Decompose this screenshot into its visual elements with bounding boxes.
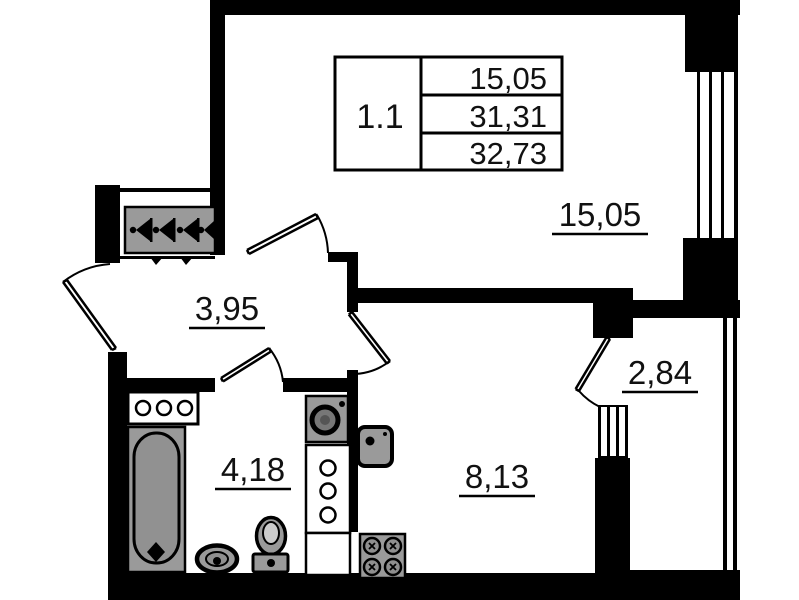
hallway-area-label: 3,95 xyxy=(195,290,259,327)
floor-plan-svg: 1.1 15,05 31,31 32,73 15,05 3,95 4,18 8,… xyxy=(0,0,799,600)
door-leaf xyxy=(63,280,116,350)
balcony-door xyxy=(576,337,610,407)
kitchen-area-label: 8,13 xyxy=(465,458,529,495)
window-icon xyxy=(598,405,601,458)
washing-machine-icon xyxy=(306,396,348,442)
wall xyxy=(347,252,358,312)
balcony-glazing-icon xyxy=(723,310,727,573)
table-value-overall-area: 32,73 xyxy=(469,136,547,171)
washbasin-icon xyxy=(197,546,237,573)
wall-thin-line xyxy=(107,188,210,192)
info-table: 1.1 15,05 31,31 32,73 xyxy=(335,57,562,171)
duct-marker-icon xyxy=(150,257,163,265)
door-swing-icon xyxy=(63,264,110,282)
window-icon xyxy=(625,405,628,458)
bathtub-icon xyxy=(128,427,185,572)
entrance-door xyxy=(63,264,116,350)
door-leaf xyxy=(576,337,610,391)
wall xyxy=(593,303,633,338)
door-swing-icon xyxy=(579,391,600,407)
wall xyxy=(595,458,630,578)
window-icon xyxy=(616,405,619,458)
door-swing-icon xyxy=(317,215,328,253)
table-value-total-area: 31,31 xyxy=(469,99,547,134)
wall xyxy=(210,0,740,15)
door-swing-icon xyxy=(269,348,283,382)
door-leaf xyxy=(221,348,271,382)
window-icon xyxy=(709,72,712,238)
wall xyxy=(358,288,633,303)
table-value-living-area: 15,05 xyxy=(469,61,547,96)
wall-thin-line xyxy=(120,256,215,259)
living-room-area-label: 15,05 xyxy=(559,196,642,233)
window-icon xyxy=(734,72,738,238)
floor-plan: 1.1 15,05 31,31 32,73 15,05 3,95 4,18 8,… xyxy=(0,0,799,600)
window-icon xyxy=(598,456,628,458)
duct-marker-icon xyxy=(180,257,193,265)
wall xyxy=(685,0,738,72)
bathroom-door xyxy=(221,348,283,382)
balcony-area-label: 2,84 xyxy=(628,354,692,391)
kitchen-sink-icon xyxy=(352,427,392,466)
wall xyxy=(108,352,127,600)
door-leaf xyxy=(349,312,390,364)
cabinet-niche xyxy=(306,533,350,575)
window-icon xyxy=(721,72,724,238)
window-icon xyxy=(598,405,628,407)
toilet-icon xyxy=(253,518,288,573)
stove-icon xyxy=(360,534,405,578)
door-leaf xyxy=(247,214,318,254)
unit-number: 1.1 xyxy=(356,98,403,136)
pipe-shaft xyxy=(306,445,350,533)
wall xyxy=(125,378,215,392)
kitchen-window xyxy=(598,405,628,458)
living-room-window xyxy=(697,72,738,238)
living-room-door xyxy=(247,214,328,254)
balcony-glazing xyxy=(723,310,737,573)
window-icon xyxy=(697,72,700,238)
pipe-niche xyxy=(128,392,198,424)
wall xyxy=(95,185,120,263)
balcony-glazing-icon xyxy=(733,310,737,573)
wall xyxy=(683,238,738,310)
kitchen-door xyxy=(349,312,390,374)
bathroom-area-label: 4,18 xyxy=(221,451,285,488)
window-icon xyxy=(607,405,610,458)
wall xyxy=(283,378,358,392)
